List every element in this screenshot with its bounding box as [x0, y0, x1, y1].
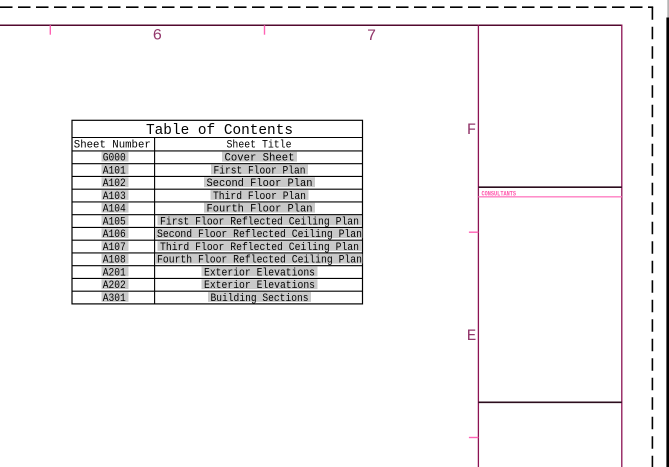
svg-text:Building Sections: Building Sections — [211, 293, 309, 305]
svg-text:First Floor Plan: First Floor Plan — [214, 165, 306, 177]
svg-text:Cover Sheet: Cover Sheet — [225, 153, 295, 165]
svg-text:Fourth Floor Plan: Fourth Floor Plan — [207, 204, 313, 216]
svg-text:A201: A201 — [103, 267, 126, 279]
svg-text:Exterior Elevations: Exterior Elevations — [204, 267, 315, 279]
svg-text:Second Floor Plan: Second Floor Plan — [207, 178, 313, 190]
svg-text:A106: A106 — [103, 229, 126, 241]
svg-text:6: 6 — [152, 27, 162, 45]
svg-text:A202: A202 — [103, 280, 126, 292]
svg-text:First Floor Reflected Ceiling: First Floor Reflected Ceiling Plan — [160, 216, 359, 228]
svg-text:Fourth Floor Reflected Ceiling: Fourth Floor Reflected Ceiling Plan — [157, 255, 362, 267]
svg-text:A103: A103 — [103, 191, 126, 203]
svg-text:A107: A107 — [103, 242, 126, 254]
svg-text:Sheet Title: Sheet Title — [227, 140, 292, 152]
svg-text:Sheet Number: Sheet Number — [74, 140, 151, 152]
svg-text:A108: A108 — [103, 255, 126, 267]
svg-text:A104: A104 — [103, 204, 126, 216]
svg-text:A102: A102 — [103, 178, 126, 190]
svg-text:Exterior Elevations: Exterior Elevations — [204, 280, 315, 292]
svg-text:Table of Contents: Table of Contents — [146, 123, 293, 139]
svg-text:E: E — [467, 327, 477, 345]
svg-text:A105: A105 — [103, 216, 126, 228]
svg-text:Third Floor Reflected Ceiling: Third Floor Reflected Ceiling Plan — [160, 242, 359, 254]
svg-text:A301: A301 — [103, 293, 126, 305]
svg-text:7: 7 — [367, 27, 377, 45]
svg-text:Second Floor Reflected Ceiling: Second Floor Reflected Ceiling Plan — [157, 229, 362, 241]
svg-text:F: F — [467, 121, 477, 139]
svg-text:A101: A101 — [103, 165, 126, 177]
svg-text:Third Floor Plan: Third Floor Plan — [213, 191, 306, 203]
svg-text:G000: G000 — [103, 153, 126, 165]
